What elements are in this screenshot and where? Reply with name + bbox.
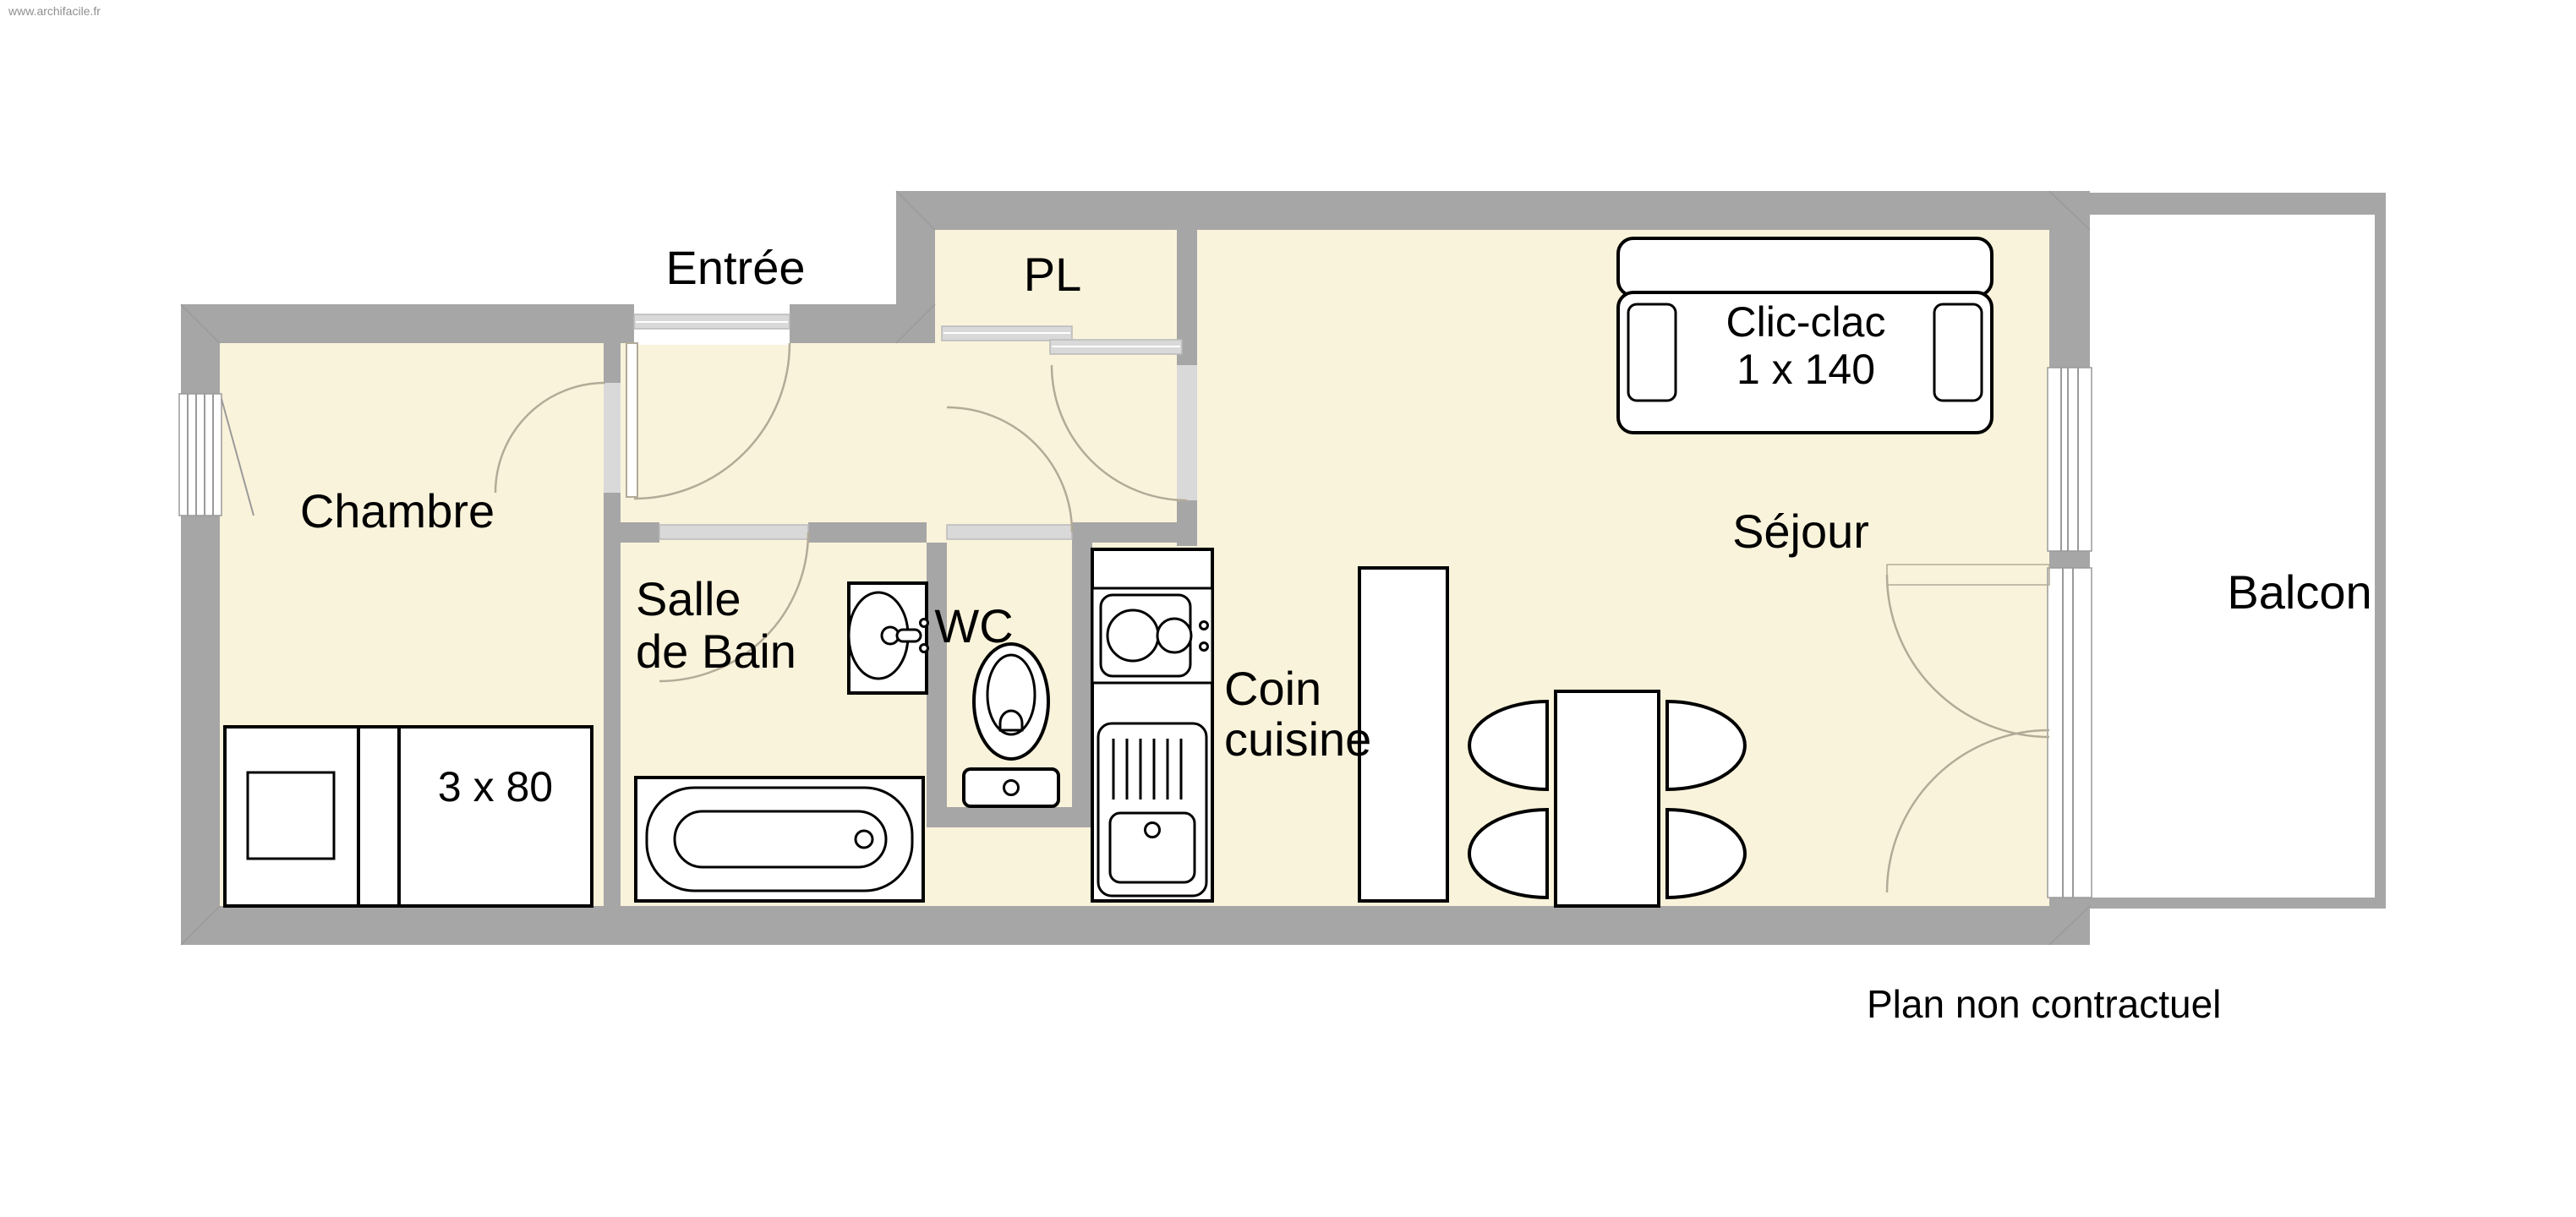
wall-right-separator [2049, 551, 2090, 568]
wall-chambre-lower [604, 493, 621, 906]
bed-mattress [399, 727, 592, 906]
wall-wc-right [1072, 543, 1092, 827]
stove-burner-small [1157, 619, 1191, 652]
room-label-chambre: Chambre [300, 484, 495, 538]
bed-headboard [358, 727, 399, 906]
bed-label: 3 x 80 [438, 763, 553, 810]
room-label-sejour: Séjour [1732, 505, 1869, 558]
kitchen-unit [1092, 549, 1212, 901]
stove-burner-large [1108, 610, 1158, 661]
wall-sejour-left-stub [1177, 500, 1197, 546]
kitchen-sink [1098, 723, 1206, 896]
floor-plan: www.archifacile.fr Entrée PL Chambre Sal… [0, 0, 2576, 1217]
sink-faucet [897, 630, 921, 641]
sofa-armrest-right [1934, 304, 1982, 401]
wall-top-right [896, 191, 2090, 230]
plan-note: Plan non contractuel [1867, 982, 2221, 1026]
wall-hall-seg2 [808, 522, 927, 543]
wall-balcony-bottom [2090, 898, 2386, 909]
wall-hall-seg1 [621, 522, 659, 543]
wall-bottom [181, 906, 2090, 945]
sofa-label-1: Clic-clac [1726, 298, 1886, 346]
wall-chambre-upper [604, 343, 621, 383]
sofa-backrest [1618, 238, 1992, 296]
sejour-window [2048, 368, 2092, 551]
wall-balcony-top [2090, 193, 2386, 215]
balcony-floor [2090, 215, 2375, 898]
watermark: www.archifacile.fr [8, 4, 101, 18]
room-label-entree: Entrée [666, 241, 806, 294]
room-label-wc: WC [934, 599, 1013, 652]
wall-wc-bottom [927, 807, 1092, 827]
room-label-pl: PL [1024, 248, 1082, 301]
kitchen-bar [1359, 568, 1447, 901]
dining-table [1556, 691, 1659, 906]
wall-right-upper [2049, 191, 2090, 368]
toilet-button [1004, 781, 1019, 795]
bed-nightstand-square [248, 772, 334, 859]
room-label-coin-cuisine-1: Coin [1224, 662, 1321, 715]
sofa-armrest-left [1628, 304, 1676, 401]
sofa-label-2: 1 x 140 [1736, 346, 1875, 393]
room-label-salle-de-bain-2: de Bain [636, 625, 796, 678]
room-label-balcon: Balcon [2227, 565, 2371, 619]
bed [225, 727, 592, 906]
room-label-salle-de-bain-1: Salle [636, 572, 741, 625]
page: { "meta": { "watermark": "www.archifacil… [0, 0, 2576, 1217]
bathroom-sink [849, 583, 928, 693]
room-label-coin-cuisine-2: cuisine [1224, 712, 1371, 766]
bathtub-drain [856, 831, 872, 848]
bathtub [636, 778, 923, 901]
wall-top-left [181, 304, 935, 343]
wall-balcony-right [2375, 193, 2386, 909]
wall-wc-left [927, 543, 947, 827]
